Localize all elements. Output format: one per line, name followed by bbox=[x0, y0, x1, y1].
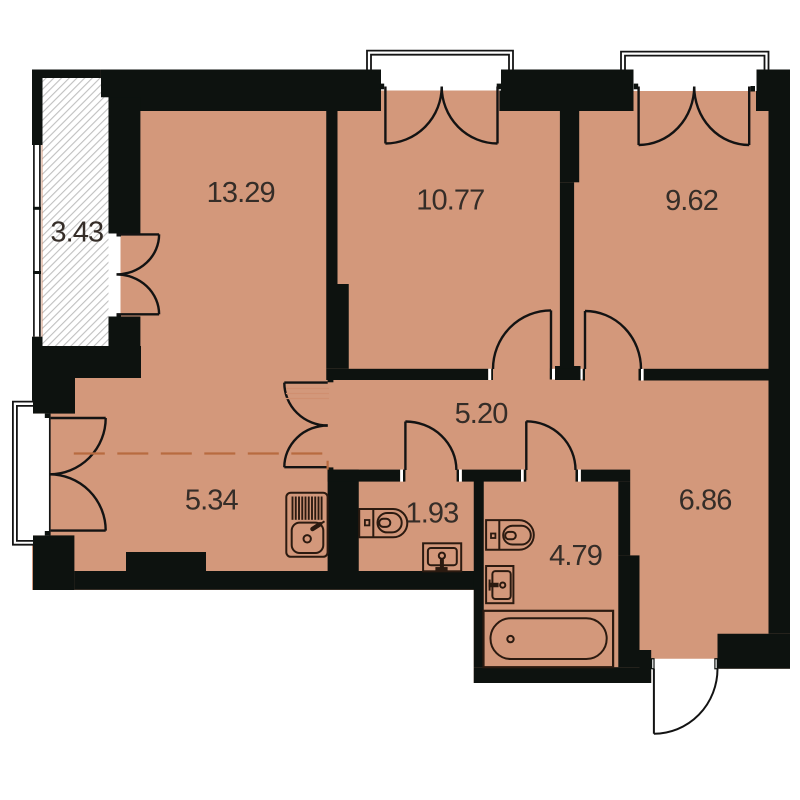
svg-text:13.29: 13.29 bbox=[207, 177, 275, 209]
svg-text:5.34: 5.34 bbox=[185, 485, 239, 517]
svg-text:1.93: 1.93 bbox=[405, 498, 458, 530]
svg-text:10.77: 10.77 bbox=[416, 185, 484, 217]
svg-text:6.86: 6.86 bbox=[679, 485, 732, 517]
svg-text:9.62: 9.62 bbox=[665, 185, 718, 217]
svg-text:5.20: 5.20 bbox=[455, 398, 508, 430]
svg-text:4.79: 4.79 bbox=[549, 540, 602, 572]
svg-text:3.43: 3.43 bbox=[50, 217, 103, 249]
